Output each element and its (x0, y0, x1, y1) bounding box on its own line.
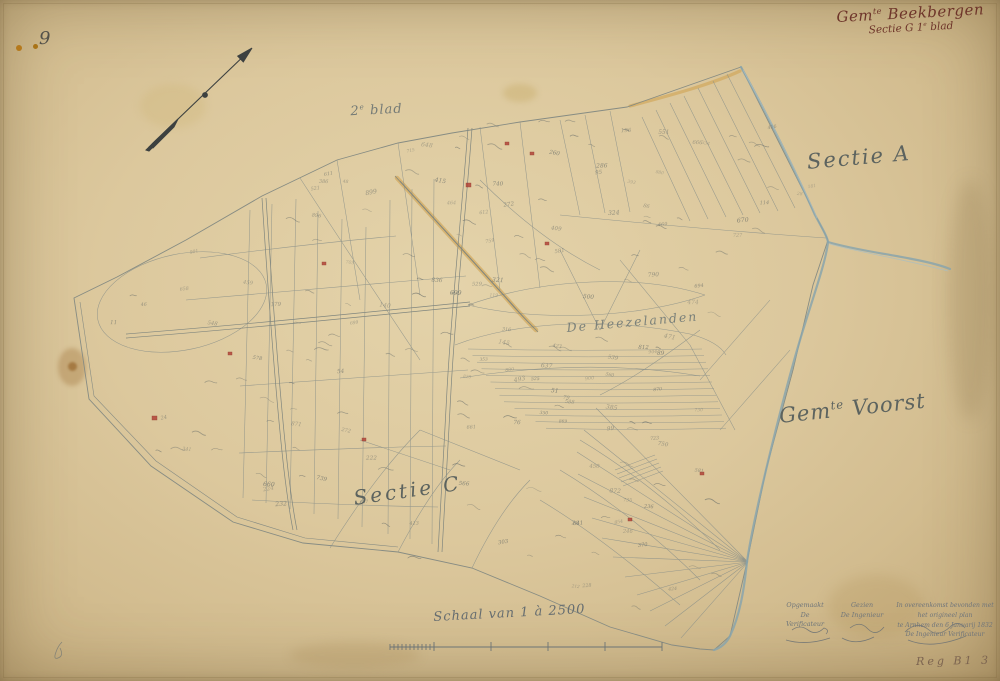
parcel-number-scribble: 260 (548, 150, 561, 158)
cadastral-map-canvas: 2867153342606666481962728993866124874041… (0, 0, 1000, 681)
pencil-scribble (631, 606, 641, 610)
pencil-scribble (624, 279, 632, 282)
parcel-number-scribble: 415 (433, 177, 446, 185)
north-arrow-icon (146, 48, 252, 151)
parcel-number-scribble: 140 (379, 302, 392, 310)
pencil-scribble (337, 411, 348, 416)
approved-role: De Verificateur (781, 611, 829, 630)
pencil-scribble (460, 358, 470, 362)
pencil-scribble (412, 293, 426, 297)
parcel-number-scribble: 246 (622, 529, 634, 535)
map-scale-bar (390, 642, 662, 651)
parcel-number-scribble: 46 (140, 302, 147, 308)
scanned-cadastral-map-sheet: 2867153342606666481962728993866124874041… (0, 0, 1000, 681)
pencil-scribble (514, 235, 523, 238)
pencil-scribble (654, 483, 666, 487)
hayland-strips (468, 349, 726, 429)
parcel-number-scribble: 578 (252, 355, 262, 363)
pencil-scribble (378, 466, 394, 472)
pencil-scribble (236, 378, 247, 381)
parcel-number-scribble: 548 (207, 320, 219, 328)
pencil-scribble (629, 479, 638, 482)
parcel-number-scribble: 872 (609, 488, 621, 496)
parcel-number-scribble: 581 (694, 467, 704, 474)
pencil-scribble (749, 142, 761, 147)
cross-road-edge (126, 306, 470, 338)
parcel-number-scribble: 286 (595, 162, 608, 169)
parcel-number-scribble: 648 (421, 141, 434, 150)
parcel-number-scribble: 212 (570, 583, 580, 589)
stream-branch-east (828, 242, 950, 269)
parcel-number-scribble: 525 (531, 376, 540, 382)
pencil-scribble (565, 119, 575, 123)
parcel-number-scribble: 870 (653, 386, 662, 393)
parcel-number-scribble: 739 (316, 475, 328, 483)
building (322, 262, 326, 265)
pencil-scribble (457, 234, 463, 236)
parcel-number-scribble: 321 (492, 277, 504, 285)
parcel-number-scribble: 95 (595, 170, 603, 176)
road-edge-layer (126, 128, 538, 552)
pencil-scribble (629, 421, 635, 424)
pencil-scribble (403, 254, 415, 257)
pencil-scribble (595, 337, 608, 342)
pencil-scribble (738, 159, 751, 162)
pencil-mark (55, 642, 62, 658)
parcel-number-scribble: 699 (350, 320, 359, 326)
parcel-number-scribble: 393 (627, 180, 636, 186)
pencil-scribble (467, 504, 481, 510)
parcel-number-scribble: 114 (760, 200, 770, 206)
north-arrow-feather (146, 127, 170, 151)
parcel-number-scribble: 750 (657, 441, 669, 449)
pencil-scribble (457, 413, 470, 418)
parcel-number-scribble: 670 (737, 217, 749, 225)
parcel-number-scribble: 740 (493, 181, 504, 187)
parcel-number-scribble: 409 (550, 225, 563, 232)
pencil-scribble (405, 169, 419, 174)
parcel-number-scribble: 500 (583, 294, 595, 301)
pencil-scribble (362, 209, 372, 212)
hayland-strip-layer (468, 349, 726, 429)
parcel-number-scribble: 48 (342, 180, 349, 186)
pencil-scribble (679, 267, 689, 270)
outer-boundary (74, 67, 828, 650)
seen-role: De Ingenieur (837, 611, 887, 621)
parcel-number-scribble: 828 (463, 375, 472, 381)
parcel-number-scribble: 179 (271, 302, 282, 308)
parcel-number-scribble: 871 (291, 421, 302, 428)
certification-col-approved: Opgemaakt De Verificateur (781, 601, 829, 640)
parcel-number-scribble: 272 (340, 427, 352, 435)
parcel-number-scribble: 54 (337, 369, 345, 375)
pencil-scribble (503, 415, 516, 420)
parcel-number-scribble: 896 (311, 212, 322, 219)
pencil-scribble (707, 312, 721, 317)
parcel-number-scribble: 694 (694, 283, 704, 290)
building (228, 352, 232, 355)
pencil-scribble (705, 498, 721, 503)
parcel-number-scribble: 11 (110, 320, 117, 326)
parcel-number-scribble: 727 (733, 233, 743, 239)
building-layer (152, 142, 704, 521)
parcel-number-scribble: 899 (365, 188, 378, 197)
pencil-scribble (192, 431, 206, 435)
pencil-scribble (286, 350, 293, 352)
parcel-number-scribble: 459 (242, 280, 254, 287)
parcel-number-scribble: 303 (498, 539, 510, 547)
pencil-scribble (627, 427, 638, 430)
pencil-scribble (457, 400, 469, 405)
parcel-number-scribble: 539 (607, 354, 619, 362)
pencil-scribble (644, 216, 651, 218)
north-boundary-road (630, 71, 740, 106)
pencil-scribble (455, 147, 460, 149)
pencil-scribble (767, 187, 778, 190)
parcel-number-scribble: 450 (588, 464, 600, 470)
pencil-scribble (656, 347, 661, 349)
pencil-scribble (286, 217, 300, 222)
parcel-number-scribble: 759 (485, 237, 495, 245)
pencil-scribble (156, 450, 162, 452)
building (545, 242, 549, 245)
certification-note-line: De Ingenieur Verificateur (895, 630, 995, 640)
parcel-number-scribble: 474 (686, 299, 699, 306)
pencil-scribble (290, 407, 297, 410)
pencil-scribble (754, 143, 769, 149)
pencil-scribble (405, 348, 418, 352)
inner-boundary-double-line (80, 302, 398, 547)
parcel-number-scribble: 413 (409, 521, 419, 527)
pencil-scribble (555, 535, 566, 538)
parcel-number-scribble: 529 (472, 282, 483, 288)
approved-label: Opgemaakt (781, 601, 829, 611)
certification-col-seen: Gezien De Ingenieur (837, 601, 887, 640)
parcel-number-scribble: 869 (559, 419, 568, 424)
parcel-number-scribble: 588 (565, 399, 576, 406)
pencil-scribble (592, 552, 600, 555)
parcel-number-scribble: 581 (554, 248, 565, 255)
parcel-number-scribble: 145 (498, 338, 511, 347)
pencil-scribble (345, 303, 351, 305)
adjacent-sheet-label: 2e blad (350, 100, 403, 119)
cross-road-edge (126, 302, 470, 334)
parcel-number-scribble: 900 (585, 375, 595, 382)
parcel-number-scribble: 353 (480, 356, 489, 361)
registry-code: Reg B1 3 (916, 654, 991, 668)
pencil-scribble (289, 382, 294, 383)
parcel-number-scribble: 350 (540, 411, 549, 416)
certification-block: Opgemaakt De Verificateur Gezien De Inge… (781, 601, 995, 640)
building (152, 416, 157, 420)
parcel-number-scribble: 611 (324, 170, 334, 177)
registry-dot (33, 44, 38, 49)
pencil-scribble (677, 218, 683, 220)
parcel-number-scribble: 341 (182, 446, 192, 453)
seen-label: Gezien (837, 601, 887, 611)
pencil-scribble (312, 238, 322, 242)
pencil-scribble (382, 523, 391, 527)
pencil-scribble (463, 219, 477, 224)
parcel-number-scribble: 880 (655, 170, 664, 176)
pencil-scribble (540, 266, 555, 272)
pencil-scribble (729, 135, 737, 138)
parcel-number-scribble: 836 (431, 278, 443, 284)
building (362, 438, 366, 441)
pencil-scribble (643, 221, 651, 223)
scale-bar-major-ticks (434, 642, 662, 651)
pencil-scribble (386, 353, 395, 356)
parcel-number-scribble: 28 (796, 191, 803, 198)
building (466, 183, 471, 187)
parcel-number-scribble: 272 (502, 201, 515, 209)
parcel-number-scribble: 424 (667, 586, 678, 593)
certification-note-line: te Arnhem den 6 Januarij 1832 (895, 621, 995, 631)
pencil-scribble (527, 555, 533, 557)
parcel-number-scribble: 471 (662, 332, 676, 341)
registry-dot (16, 45, 22, 51)
parcel-number-scribble: 99 (607, 426, 615, 433)
parcel-number-scribble: 715 (406, 148, 415, 155)
pencil-scribble (318, 341, 332, 345)
pencil-scribble (306, 360, 312, 362)
pencil-scribble (519, 253, 531, 258)
parcel-number-scribble: 641 (573, 520, 584, 527)
parcel-number-scribble: 854 (614, 519, 624, 526)
pencil-scribble (555, 405, 564, 408)
pencil-scribble (601, 515, 610, 519)
pencil-scribble (519, 385, 534, 391)
parcel-number-scribble: 386 (319, 179, 330, 185)
parcel-number-scribble: 51 (551, 387, 559, 395)
building (628, 518, 632, 521)
certification-note: In overeenkomst bevonden met het origine… (895, 601, 995, 640)
pencil-scribble (471, 370, 485, 374)
pencil-scribble (716, 251, 728, 254)
parcel-number-scribble: 705 (345, 259, 354, 266)
pencil-scribble (305, 290, 314, 293)
parcel-number-scribble: 196 (621, 128, 632, 134)
pencil-scribble (256, 473, 267, 478)
parcel-number-scribble: 464 (446, 200, 456, 206)
parcel-number-scribble: 86 (643, 203, 651, 210)
parcel-number-scribble: 385 (605, 403, 618, 412)
pencil-scribble (440, 331, 453, 336)
pencil-scribble (299, 475, 305, 477)
parcel-number-scribble: 370 (637, 542, 648, 549)
parcel-number-scribble: 89 (656, 350, 664, 358)
pencil-scribble (711, 573, 722, 576)
parcel-number-scribble: 76 (513, 420, 521, 426)
pencil-scribble (526, 487, 541, 491)
parcel-number-scribble: 901 (189, 248, 199, 256)
parcel-number-scribble: 904 (648, 349, 657, 356)
parcel-number-scribble: 660 (263, 481, 275, 489)
parcel-number-scribble: 612 (479, 209, 489, 216)
parcel-number-scribble: 666 (692, 140, 703, 146)
parcel-number-scribble: 469 (657, 222, 669, 229)
pencil-scribble (292, 447, 299, 450)
building (530, 152, 534, 155)
parcel-number-scribble: 119 (490, 293, 499, 299)
parcel-number-scribble: 730 (694, 407, 703, 413)
pencil-scribble (452, 463, 465, 467)
parcel-number-scribble: 661 (466, 424, 476, 430)
left-cross-lines (186, 236, 468, 507)
parcel-number-scribble: 735 (623, 497, 632, 503)
sheet-corner-number: 9 (39, 28, 50, 49)
pencil-scribble (487, 143, 503, 149)
parcel-number-scribble: 24 (159, 415, 168, 422)
pencil-scribble (211, 447, 222, 452)
parcel-number-scribble: 560 (605, 371, 615, 379)
pencil-scribble (588, 144, 595, 147)
pencil-scribble (538, 198, 547, 201)
parcel-number-scribble: 423 (551, 343, 562, 350)
certification-note-line: In overeenkomst bevonden met het origine… (895, 601, 995, 621)
hatched-parcel (615, 455, 663, 486)
pencil-scribble (328, 333, 340, 337)
pencil-scribble (204, 380, 217, 385)
parcel-number-scribble: 181 (807, 184, 816, 190)
parcel-number-scribble: 880 (505, 366, 515, 373)
north-arrow-pivot (203, 93, 208, 98)
parcel-number-scribble: 637 (541, 362, 553, 370)
parcel-number-scribble: 222 (365, 456, 377, 462)
parcel-number-scribble: 232 (274, 500, 287, 508)
pencil-scribble (130, 294, 137, 297)
pencil-scribble (482, 284, 493, 288)
parcel-number-scribble: 658 (179, 286, 189, 293)
fan-cross-lines (540, 440, 720, 605)
parcel-number-scribble: 551 (658, 130, 669, 136)
parcel-number-scribble-layer: 2867153342606666481962728993866124874041… (110, 119, 817, 609)
parcel-line-layer (88, 74, 826, 638)
pencil-scribble (475, 185, 483, 188)
parcel-number-scribble: 790 (648, 272, 660, 279)
parcel-number-scribble: 316 (502, 326, 512, 333)
pencil-scribble (570, 134, 579, 137)
boundary-layer (74, 67, 828, 650)
parcel-number-scribble: 236 (643, 504, 655, 510)
parcel-number-scribble: 521 (310, 185, 320, 192)
parcel-number-scribble: 324 (608, 209, 620, 217)
pencil-scribble (260, 397, 275, 403)
parcel-number-scribble: 228 (581, 583, 592, 590)
pencil-scribble (459, 136, 469, 140)
building (505, 142, 509, 145)
